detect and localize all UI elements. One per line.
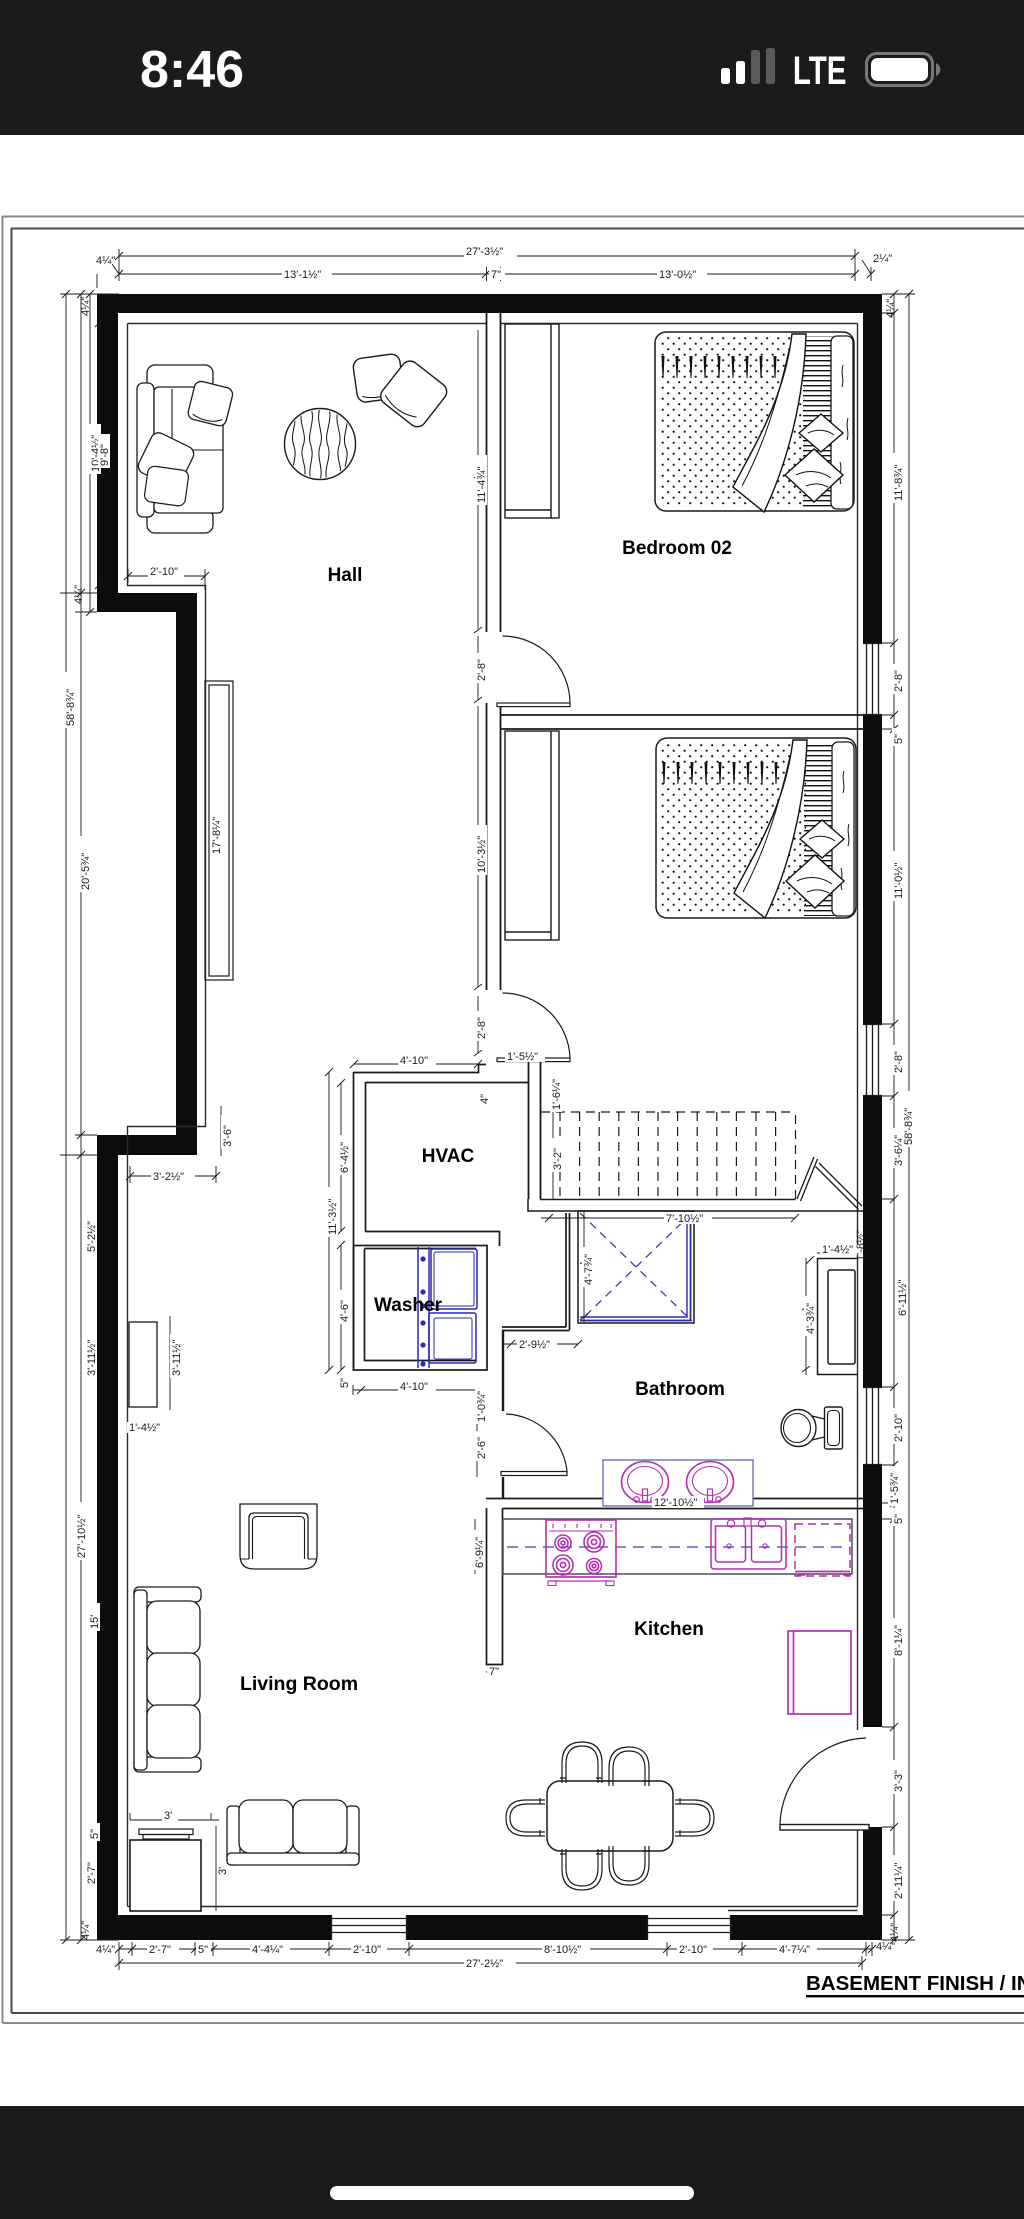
- svg-text:3'-11½": 3'-11½": [86, 1340, 98, 1376]
- svg-text:2'-11¼": 2'-11¼": [893, 1863, 905, 1899]
- svg-text:7'-10½": 7'-10½": [666, 1213, 703, 1225]
- svg-text:4'-10": 4'-10": [400, 1381, 428, 1393]
- svg-text:58'-8¾": 58'-8¾": [65, 689, 77, 726]
- svg-text:2'-10": 2'-10": [679, 1944, 707, 1956]
- svg-text:LTE: LTE: [793, 49, 847, 93]
- svg-text:5": 5": [198, 1944, 208, 1956]
- svg-text:4¼": 4¼": [885, 299, 897, 318]
- svg-text:Washer: Washer: [374, 1295, 443, 1316]
- svg-text:4¼": 4¼": [73, 585, 85, 604]
- svg-text:4¼": 4¼": [80, 297, 92, 316]
- svg-text:4'-7¾": 4'-7¾": [583, 1254, 595, 1285]
- svg-text:17'-8¼": 17'-8¼": [211, 817, 223, 854]
- svg-text:10'-3½": 10'-3½": [476, 836, 488, 873]
- svg-text:3'-2": 3'-2": [552, 1148, 564, 1170]
- svg-text:1'-4½": 1'-4½": [822, 1244, 853, 1256]
- svg-text:2'-6": 2'-6": [476, 1437, 488, 1459]
- svg-text:2'-7": 2'-7": [86, 1862, 98, 1884]
- svg-text:11'-0½": 11'-0½": [893, 863, 905, 899]
- svg-text:4¼": 4¼": [876, 1941, 895, 1953]
- svg-text:5": 5": [339, 1378, 351, 1388]
- svg-text:4": 4": [479, 1094, 491, 1104]
- svg-text:9'-8": 9'-8": [99, 444, 111, 466]
- svg-text:13'-0½": 13'-0½": [659, 269, 696, 281]
- svg-text:4¼": 4¼": [96, 255, 115, 267]
- svg-text:5": 5": [893, 1514, 905, 1524]
- svg-text:7": 7": [491, 269, 501, 281]
- svg-text:2'-10": 2'-10": [893, 1414, 905, 1442]
- svg-text:4'-10": 4'-10": [400, 1055, 428, 1067]
- svg-text:12'-10½": 12'-10½": [654, 1497, 697, 1509]
- svg-text:2'-8": 2'-8": [893, 1051, 905, 1073]
- svg-text:4¼": 4¼": [80, 1921, 92, 1940]
- svg-text:3': 3': [217, 1867, 229, 1875]
- svg-text:15': 15': [89, 1615, 101, 1629]
- svg-text:2'-10": 2'-10": [353, 1944, 381, 1956]
- svg-text:20'-5¾": 20'-5¾": [80, 853, 92, 890]
- svg-text:27'-2½": 27'-2½": [466, 1958, 503, 1970]
- svg-text:Bedroom 02: Bedroom 02: [622, 538, 732, 559]
- svg-text:7": 7": [489, 1666, 499, 1678]
- svg-text:1'-4½": 1'-4½": [129, 1422, 160, 1434]
- svg-text:6'-4½": 6'-4½": [339, 1142, 351, 1173]
- svg-text:2'-7": 2'-7": [149, 1944, 171, 1956]
- svg-text:Bathroom: Bathroom: [635, 1379, 725, 1400]
- svg-text:6'-9¼": 6'-9¼": [474, 1537, 486, 1568]
- svg-text:4¼": 4¼": [889, 1923, 901, 1942]
- svg-text:4'-3¾": 4'-3¾": [805, 1303, 817, 1334]
- svg-text:BASEMENT FINISH / INT: BASEMENT FINISH / INT: [806, 1972, 1024, 1995]
- svg-text:1'-0¾": 1'-0¾": [476, 1391, 488, 1422]
- svg-text:1'-6¼": 1'-6¼": [551, 1079, 563, 1110]
- svg-text:1'-8½": 1'-8½": [855, 1230, 867, 1261]
- svg-text:3'-2½": 3'-2½": [153, 1171, 184, 1183]
- svg-text:2'-8": 2'-8": [476, 1017, 488, 1039]
- svg-text:4'-7¼": 4'-7¼": [779, 1944, 810, 1956]
- svg-text:8'-10½": 8'-10½": [544, 1944, 581, 1956]
- svg-text:11'-8¾": 11'-8¾": [893, 465, 905, 501]
- svg-text:3'-6": 3'-6": [222, 1125, 234, 1147]
- svg-text:13'-1½": 13'-1½": [284, 269, 321, 281]
- svg-text:3': 3': [164, 1810, 172, 1822]
- svg-text:4'-6": 4'-6": [339, 1300, 351, 1322]
- svg-text:5'-2½": 5'-2½": [86, 1221, 98, 1252]
- svg-text:27'-10½": 27'-10½": [76, 1515, 88, 1558]
- svg-text:2'-8": 2'-8": [476, 659, 488, 681]
- svg-text:3'-6¼": 3'-6¼": [893, 1135, 905, 1166]
- svg-text:2'-9½": 2'-9½": [519, 1339, 550, 1351]
- svg-text:6'-11½": 6'-11½": [897, 1280, 909, 1316]
- svg-text:4'-4¼": 4'-4¼": [252, 1944, 283, 1956]
- svg-text:5": 5": [89, 1829, 101, 1839]
- svg-text:8'-1¼": 8'-1¼": [893, 1625, 905, 1656]
- svg-text:5": 5": [893, 734, 905, 744]
- svg-text:11'-4¾": 11'-4¾": [476, 467, 488, 503]
- svg-text:4¼": 4¼": [96, 1944, 115, 1956]
- svg-text:2¼": 2¼": [873, 253, 892, 265]
- svg-text:Hall: Hall: [328, 565, 363, 586]
- svg-text:HVAC: HVAC: [422, 1146, 475, 1167]
- svg-text:Kitchen: Kitchen: [634, 1619, 704, 1640]
- svg-text:1'-5¾": 1'-5¾": [889, 1473, 901, 1504]
- svg-text:1'-5½": 1'-5½": [507, 1051, 538, 1063]
- svg-text:2'-8": 2'-8": [893, 670, 905, 692]
- svg-text:3'-11½": 3'-11½": [171, 1340, 183, 1376]
- svg-text:Living Room: Living Room: [240, 1673, 358, 1695]
- svg-text:3'-3": 3'-3": [893, 1770, 905, 1792]
- svg-text:27'-3½": 27'-3½": [466, 246, 503, 258]
- svg-text:2'-10": 2'-10": [150, 566, 178, 578]
- svg-text:11'-3½": 11'-3½": [327, 1199, 339, 1235]
